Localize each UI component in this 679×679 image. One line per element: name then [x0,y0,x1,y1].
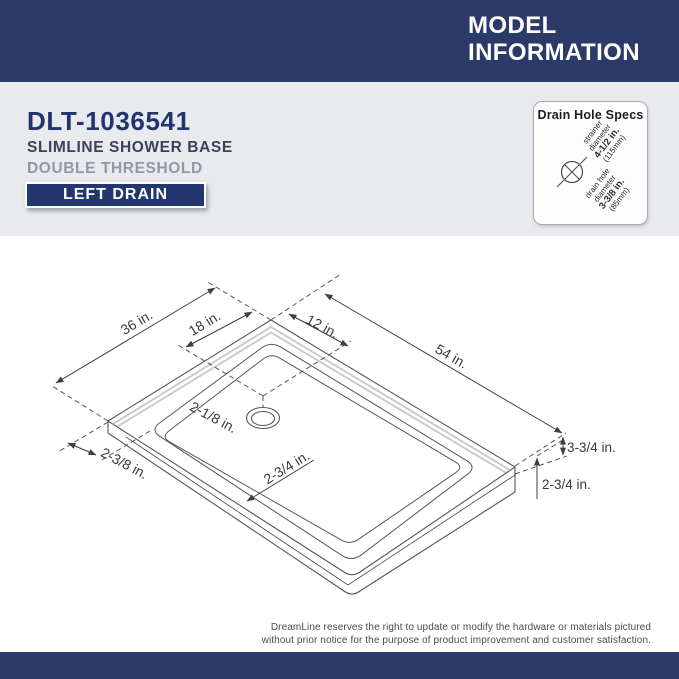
disclaimer-line2: without prior notice for the purpose of … [262,634,651,647]
page-title-line2: INFORMATION [468,39,640,66]
extension-lines [52,274,567,474]
product-name: SLIMLINE SHOWER BASE [27,139,233,157]
dim-label-threshold-side: 2-3/8 in. [98,444,150,482]
drain-side-badge: LEFT DRAIN [25,182,206,208]
header-bar: MODEL INFORMATION [0,0,679,82]
base-top-face [108,320,515,575]
flange-strips [113,327,510,473]
dim-label-length: 54 in. [433,341,471,372]
model-information-sheet: MODEL INFORMATION DLT-1036541 SLIMLINE S… [0,0,679,679]
dim-line-54in [325,294,562,433]
shower-base-outline [108,320,515,594]
basin-edges [155,344,472,558]
dim-label-drain-from-left: 18 in. [186,307,224,338]
dim-label-threshold-front: 2-3/4 in. [261,447,312,487]
dimension-lines [56,288,563,501]
drain-hole [247,408,280,429]
base-threshold-ledge [126,437,515,585]
model-number: DLT-1036541 [27,106,191,137]
dim-leader-2-3-4in-front [247,460,314,501]
dim-line-18in [186,312,252,347]
page-title: MODEL INFORMATION [468,12,640,66]
drain-hole-specs-box: Drain Hole Specs strainer diameter 4-1/2… [533,101,648,225]
dim-label-height-rim: 3-3/4 in. [567,440,616,455]
disclaimer-text: DreamLine reserves the right to update o… [262,621,651,647]
dim-label-drain-from-top: 12 in. [304,311,342,341]
dim-line-2-3-8in [68,443,96,455]
base-side-faces [108,421,515,594]
threshold-type-label: DOUBLE THRESHOLD [27,160,203,178]
dim-label-width: 36 in. [118,306,156,337]
dimension-labels: 36 in. 18 in. 12 in. 54 in. 2-1/8 in. 2-… [98,306,615,492]
drain-side-badge-label: LEFT DRAIN [63,186,168,204]
dim-line-12in [289,314,348,346]
basin-inner-edge [155,344,472,558]
basin-floor-edge [165,356,460,543]
disclaimer-line1: DreamLine reserves the right to update o… [262,621,651,634]
footer-bar [0,652,679,679]
dim-line-36in [56,288,215,383]
dim-label-drain-lip: 2-1/8 in. [187,398,239,436]
page-title-line1: MODEL [468,12,640,39]
dim-label-height-threshold: 2-3/4 in. [542,477,591,492]
